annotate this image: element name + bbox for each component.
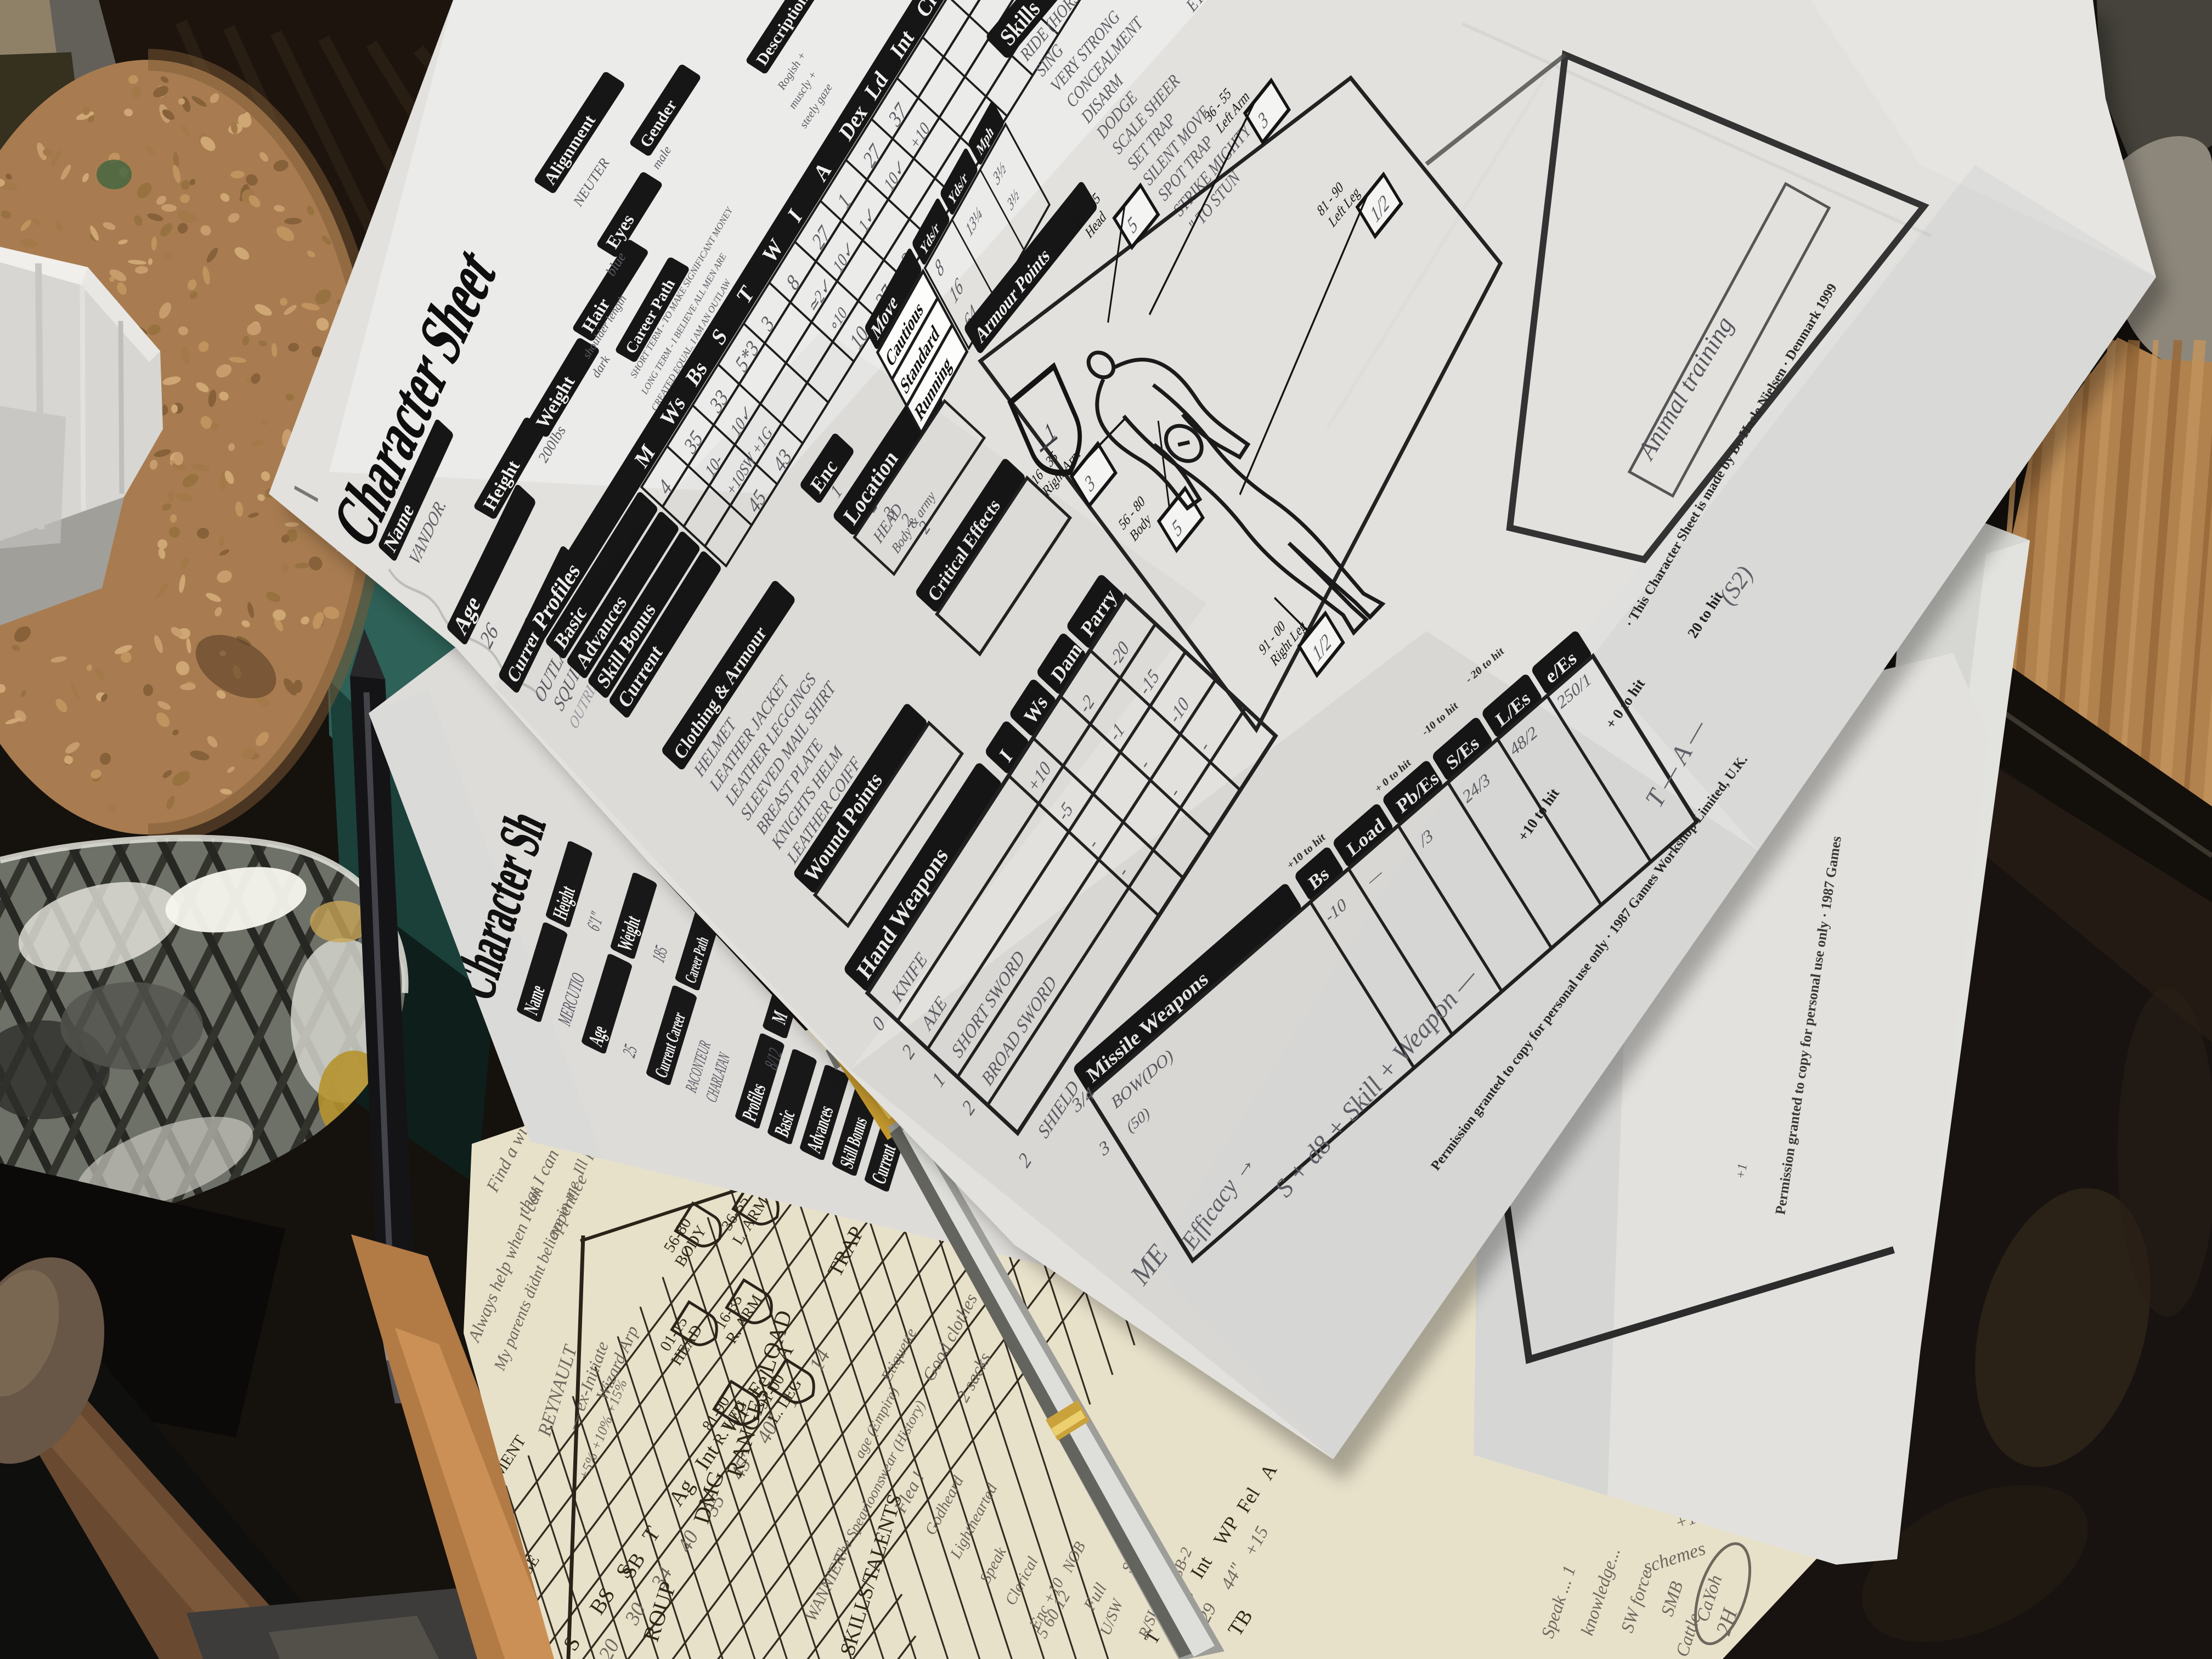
svg-text:+1: +1	[1734, 1163, 1750, 1180]
